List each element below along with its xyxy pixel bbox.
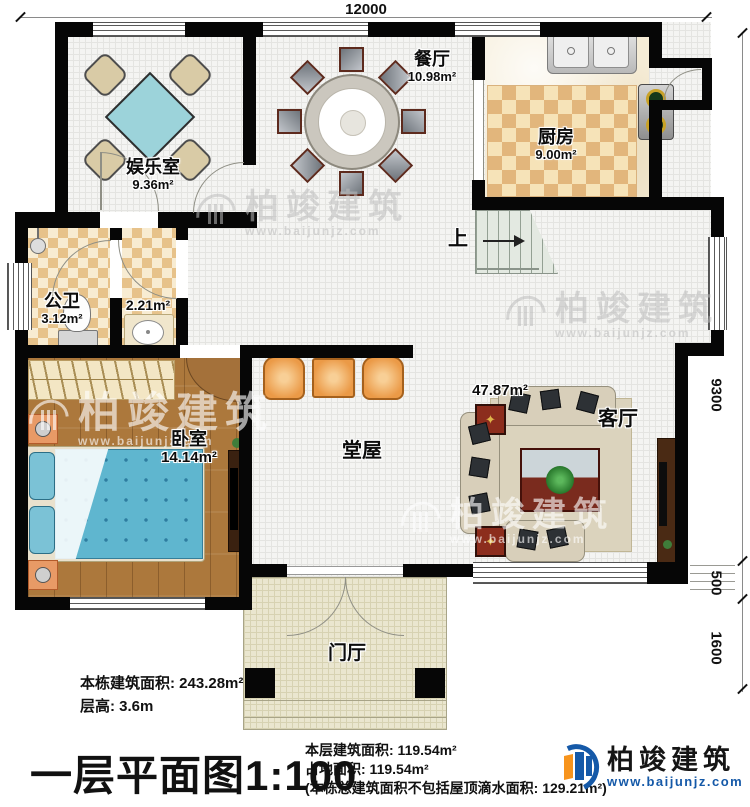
floor-plan: ✦ ✦ 柏竣建筑 www.baijunjz.com 柏竣建筑 www.baiju… [0, 0, 750, 807]
wall [472, 197, 724, 210]
wall [403, 564, 473, 577]
dimension-right-value: 1600 [708, 631, 725, 664]
dining-chair [401, 109, 426, 134]
brand-name: 柏竣建筑 [607, 747, 743, 774]
room-name: 餐厅 [408, 50, 456, 70]
room-name: 堂屋 [342, 440, 382, 462]
dimension-line-right [742, 33, 743, 692]
room-area: 9.36m² [126, 178, 180, 192]
sink-drain [567, 47, 575, 55]
room-name: 门厅 [328, 644, 366, 665]
sink-drain [607, 47, 615, 55]
dining-chair [339, 47, 364, 72]
brand-logo: 柏竣建筑 www.baijunjz.com [552, 743, 743, 793]
dimension-right-value: 9300 [708, 378, 725, 411]
room-name: 客厅 [598, 408, 638, 430]
wall [239, 345, 252, 610]
sofa-pillow [469, 457, 491, 479]
room-label-dining: 餐厅 10.98m² [408, 50, 456, 84]
entry-column [245, 668, 275, 698]
wall [243, 22, 256, 165]
basin-drain [146, 330, 150, 334]
sliding-door [473, 80, 484, 180]
window [70, 597, 205, 610]
room-area: 3.12m² [41, 312, 82, 326]
window [263, 22, 368, 37]
shower-stem [37, 228, 39, 239]
door-opening [176, 240, 188, 298]
bed-pillow [29, 452, 55, 500]
hall-armchair [263, 356, 305, 400]
star-icon: ✦ [485, 534, 496, 550]
wall [649, 100, 712, 110]
dining-table-center [340, 110, 366, 136]
brand-bar-orange [564, 754, 573, 780]
entry-step-line [243, 700, 447, 701]
wardrobe-rail [30, 379, 173, 380]
room-name: 公卫 [41, 292, 82, 312]
door-opening [180, 345, 240, 358]
entry-step-line [243, 717, 447, 718]
room-area: 14.14m² [161, 450, 217, 467]
nightstand-lamp [35, 567, 51, 583]
shower-head [30, 238, 46, 254]
brand-website: www.baijunjz.com [607, 774, 743, 789]
plant-deco [663, 540, 672, 549]
door-leaf [100, 152, 102, 210]
brand-bar-blue [575, 752, 584, 780]
hall-armchair [362, 356, 404, 400]
room-label-entertainment: 娱乐室 9.36m² [126, 158, 180, 192]
sofa-pillow [540, 389, 561, 410]
bed-pillow [29, 506, 55, 554]
floor-height-note: 层高: 3.6m [80, 695, 153, 716]
living-area-value: 47.87m² [472, 383, 528, 400]
wall [675, 343, 688, 577]
room-area: 2.21m² [126, 298, 170, 313]
stairs-up-label: 上 [448, 228, 468, 250]
stairs-landing-line [477, 268, 539, 270]
room-area: 10.98m² [408, 70, 456, 84]
building-area-note: 本栋建筑面积: 243.28m² [80, 672, 243, 693]
hall-side-table [312, 358, 355, 398]
wall [252, 564, 287, 577]
room-label-hall: 堂屋 [342, 440, 382, 462]
room-name: 厨房 [535, 128, 576, 148]
window [7, 263, 32, 330]
dining-chair [277, 109, 302, 134]
room-label-living: 客厅 [598, 408, 638, 430]
door-opening [100, 212, 158, 228]
window [473, 562, 647, 584]
entry-door-threshold [287, 566, 403, 575]
coffee-table-plant [546, 466, 574, 494]
stairs-arrow-head [514, 235, 525, 247]
wall [647, 562, 688, 584]
entry-column [415, 668, 445, 698]
room-name: 卧室 [161, 430, 217, 450]
room-area: 9.00m² [535, 148, 576, 162]
wall [55, 22, 68, 212]
end-table: ✦ [475, 526, 506, 557]
nightstand-lamp [35, 421, 51, 437]
wall [649, 100, 662, 197]
room-label-bedroom: 卧室 14.14m² [161, 430, 217, 466]
wardrobe [28, 360, 175, 400]
room-name: 上 [448, 228, 468, 250]
room-label-vanity: 2.21m² [126, 298, 170, 313]
dimension-top-value: 12000 [345, 1, 387, 18]
sofa-pillow [546, 526, 569, 549]
dimension-right-value: 500 [708, 570, 725, 595]
floor-area-note: 本层建筑面积: 119.54m² [305, 740, 457, 760]
brand-bar-blue [586, 756, 592, 776]
stairs-direction-arrow [483, 240, 515, 242]
room-name: 娱乐室 [126, 158, 180, 178]
living-tv [659, 462, 667, 526]
window [455, 22, 540, 37]
room-area: 47.87m² [472, 383, 528, 400]
footprint-area-note: 占地面积: 119.54m² [305, 759, 429, 779]
room-label-kitchen: 厨房 9.00m² [535, 128, 576, 162]
room-label-entry: 门厅 [328, 644, 366, 665]
room-label-bathroom: 公卫 3.12m² [41, 292, 82, 326]
bedroom-tv [230, 468, 238, 530]
sofa-pillow [516, 528, 538, 550]
window [93, 22, 185, 37]
window [708, 237, 727, 330]
sofa-pillow [468, 492, 490, 514]
dining-chair [339, 171, 364, 196]
brand-logo-icon [552, 743, 600, 793]
